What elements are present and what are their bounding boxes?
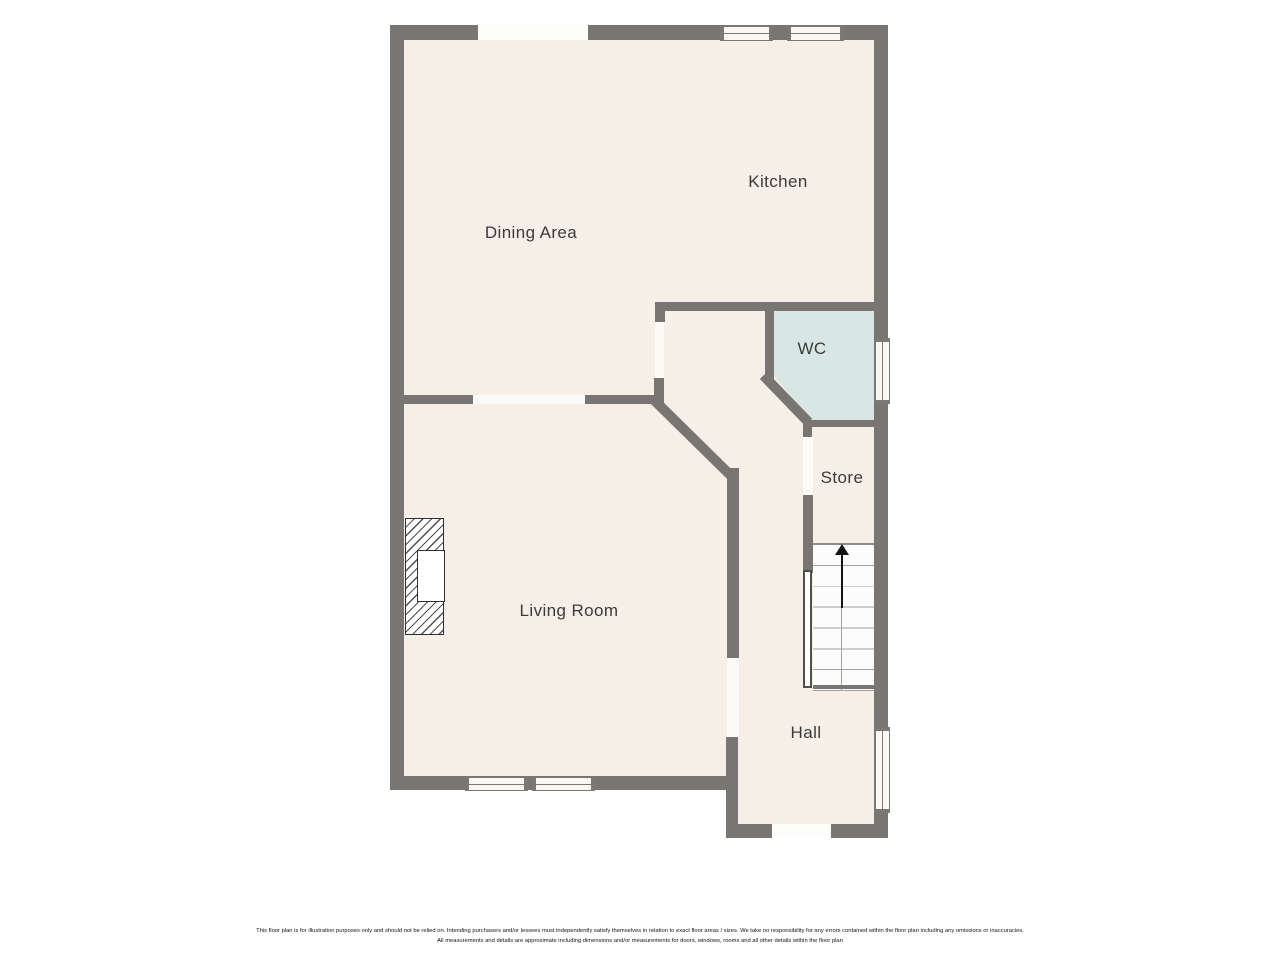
opening-top-left-window bbox=[478, 25, 588, 40]
room-label-hall: Hall bbox=[791, 723, 822, 743]
wall-left bbox=[390, 25, 404, 790]
window-mullion bbox=[466, 784, 527, 785]
wall-kitchen-corridor bbox=[655, 302, 874, 311]
fireplace-hearth bbox=[417, 550, 445, 602]
kitchen-window-2 bbox=[787, 26, 844, 41]
staircase bbox=[813, 543, 874, 691]
wall-hall-left-upper bbox=[727, 468, 739, 658]
wall-dining-living-left bbox=[404, 395, 473, 404]
stair-handrail bbox=[803, 570, 812, 688]
disclaimer-line-1: This floor plan is for illustration purp… bbox=[0, 926, 1280, 936]
up-arrow-icon bbox=[835, 544, 849, 555]
door-living-hall bbox=[727, 658, 739, 737]
floor-plan-page: Dining Area Kitchen WC Store Living Room… bbox=[0, 0, 1280, 960]
window-mullion bbox=[882, 728, 883, 812]
door-store bbox=[803, 437, 813, 495]
window-mullion bbox=[533, 784, 594, 785]
wc-window bbox=[875, 338, 890, 404]
hall-floor-extension bbox=[738, 776, 874, 824]
opening-dining-living bbox=[473, 395, 585, 404]
room-label-living: Living Room bbox=[520, 601, 619, 621]
wall-store-left bbox=[803, 495, 813, 573]
window-mullion bbox=[882, 339, 883, 403]
window-mullion bbox=[788, 33, 843, 34]
disclaimer-line-2: All measurements and details are approxi… bbox=[0, 936, 1280, 946]
stairs-direction-arrow-shaft bbox=[841, 552, 843, 608]
kitchen-window-1 bbox=[720, 26, 773, 41]
wall-kitchen-door-stub bbox=[655, 311, 665, 322]
disclaimer-text: This floor plan is for illustration purp… bbox=[0, 926, 1280, 946]
door-kitchen-corridor bbox=[655, 322, 664, 378]
hall-window bbox=[875, 727, 890, 813]
room-label-kitchen: Kitchen bbox=[748, 172, 808, 192]
window-mullion bbox=[721, 33, 772, 34]
front-door-opening bbox=[772, 824, 831, 838]
wall-hall-left-lower bbox=[726, 737, 738, 827]
living-room-window-2 bbox=[532, 777, 595, 791]
room-label-wc: WC bbox=[797, 339, 826, 359]
room-label-store: Store bbox=[821, 468, 864, 488]
wall-right bbox=[874, 25, 888, 838]
fireplace-icon bbox=[405, 518, 444, 635]
wall-wc-bottom bbox=[806, 420, 874, 427]
living-room-window-1 bbox=[465, 777, 528, 791]
room-label-dining: Dining Area bbox=[485, 223, 577, 243]
stairs-bottom-edge bbox=[813, 685, 874, 689]
wall-wc-left bbox=[765, 311, 774, 379]
